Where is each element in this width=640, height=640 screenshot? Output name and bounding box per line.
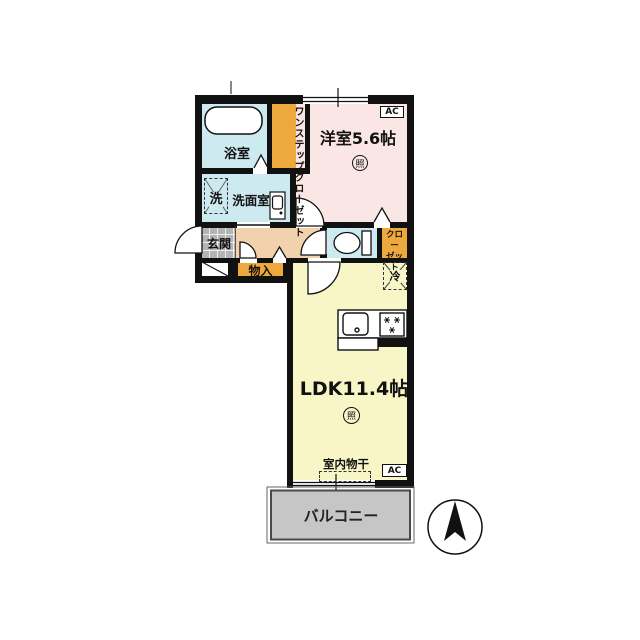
bathtub-icon (205, 107, 262, 134)
ldk-door-swing-arc (308, 262, 340, 294)
ldk-light-symbol: 照 (343, 407, 360, 424)
toilet-icon (334, 231, 371, 255)
entrance-label: 玄関 (203, 235, 235, 252)
stove-burners-icon (380, 313, 404, 336)
window-icon-top (303, 88, 368, 107)
western-room-ac-badge: AC (380, 106, 404, 118)
fridge-label: 冷 (383, 268, 407, 284)
closet-folding-door-icon (374, 208, 390, 222)
western-room-label: 洋室5.6帖 (300, 125, 416, 149)
storage-folding-door-icon (273, 247, 286, 258)
fixtures-layer (0, 0, 640, 640)
indoor-drying-box (319, 471, 371, 482)
toilet-door-swing-arc (301, 230, 326, 255)
dead-space-diagonal (202, 262, 228, 276)
storage-door-swing-arc (240, 242, 256, 258)
kitchen-partition-wall (378, 338, 407, 347)
indoor-drying-label: 室内物干 (314, 456, 378, 472)
compass-north-arrow-icon (428, 500, 482, 554)
washroom-label: 洗面室 (228, 190, 274, 209)
bathroom-label: 浴室 (207, 143, 267, 162)
washer-label: 洗 (204, 188, 228, 207)
front-door-swing-arc (175, 226, 202, 253)
ldk-ac-badge: AC (382, 464, 407, 477)
one-step-closet-label-col2: クローゼット (292, 172, 303, 238)
entrance-step-line (235, 227, 236, 258)
storage-label: 物入 (238, 262, 283, 279)
ldk-label: LDK11.4帖 (294, 374, 414, 401)
floor-plan: 浴室 ワンステップクローゼット 洗 洗面室 玄関 物入 洋室5.6帖 照 AC … (0, 0, 640, 640)
balcony-label: バルコニー (285, 505, 397, 526)
western-room-light-symbol: 照 (352, 155, 368, 171)
